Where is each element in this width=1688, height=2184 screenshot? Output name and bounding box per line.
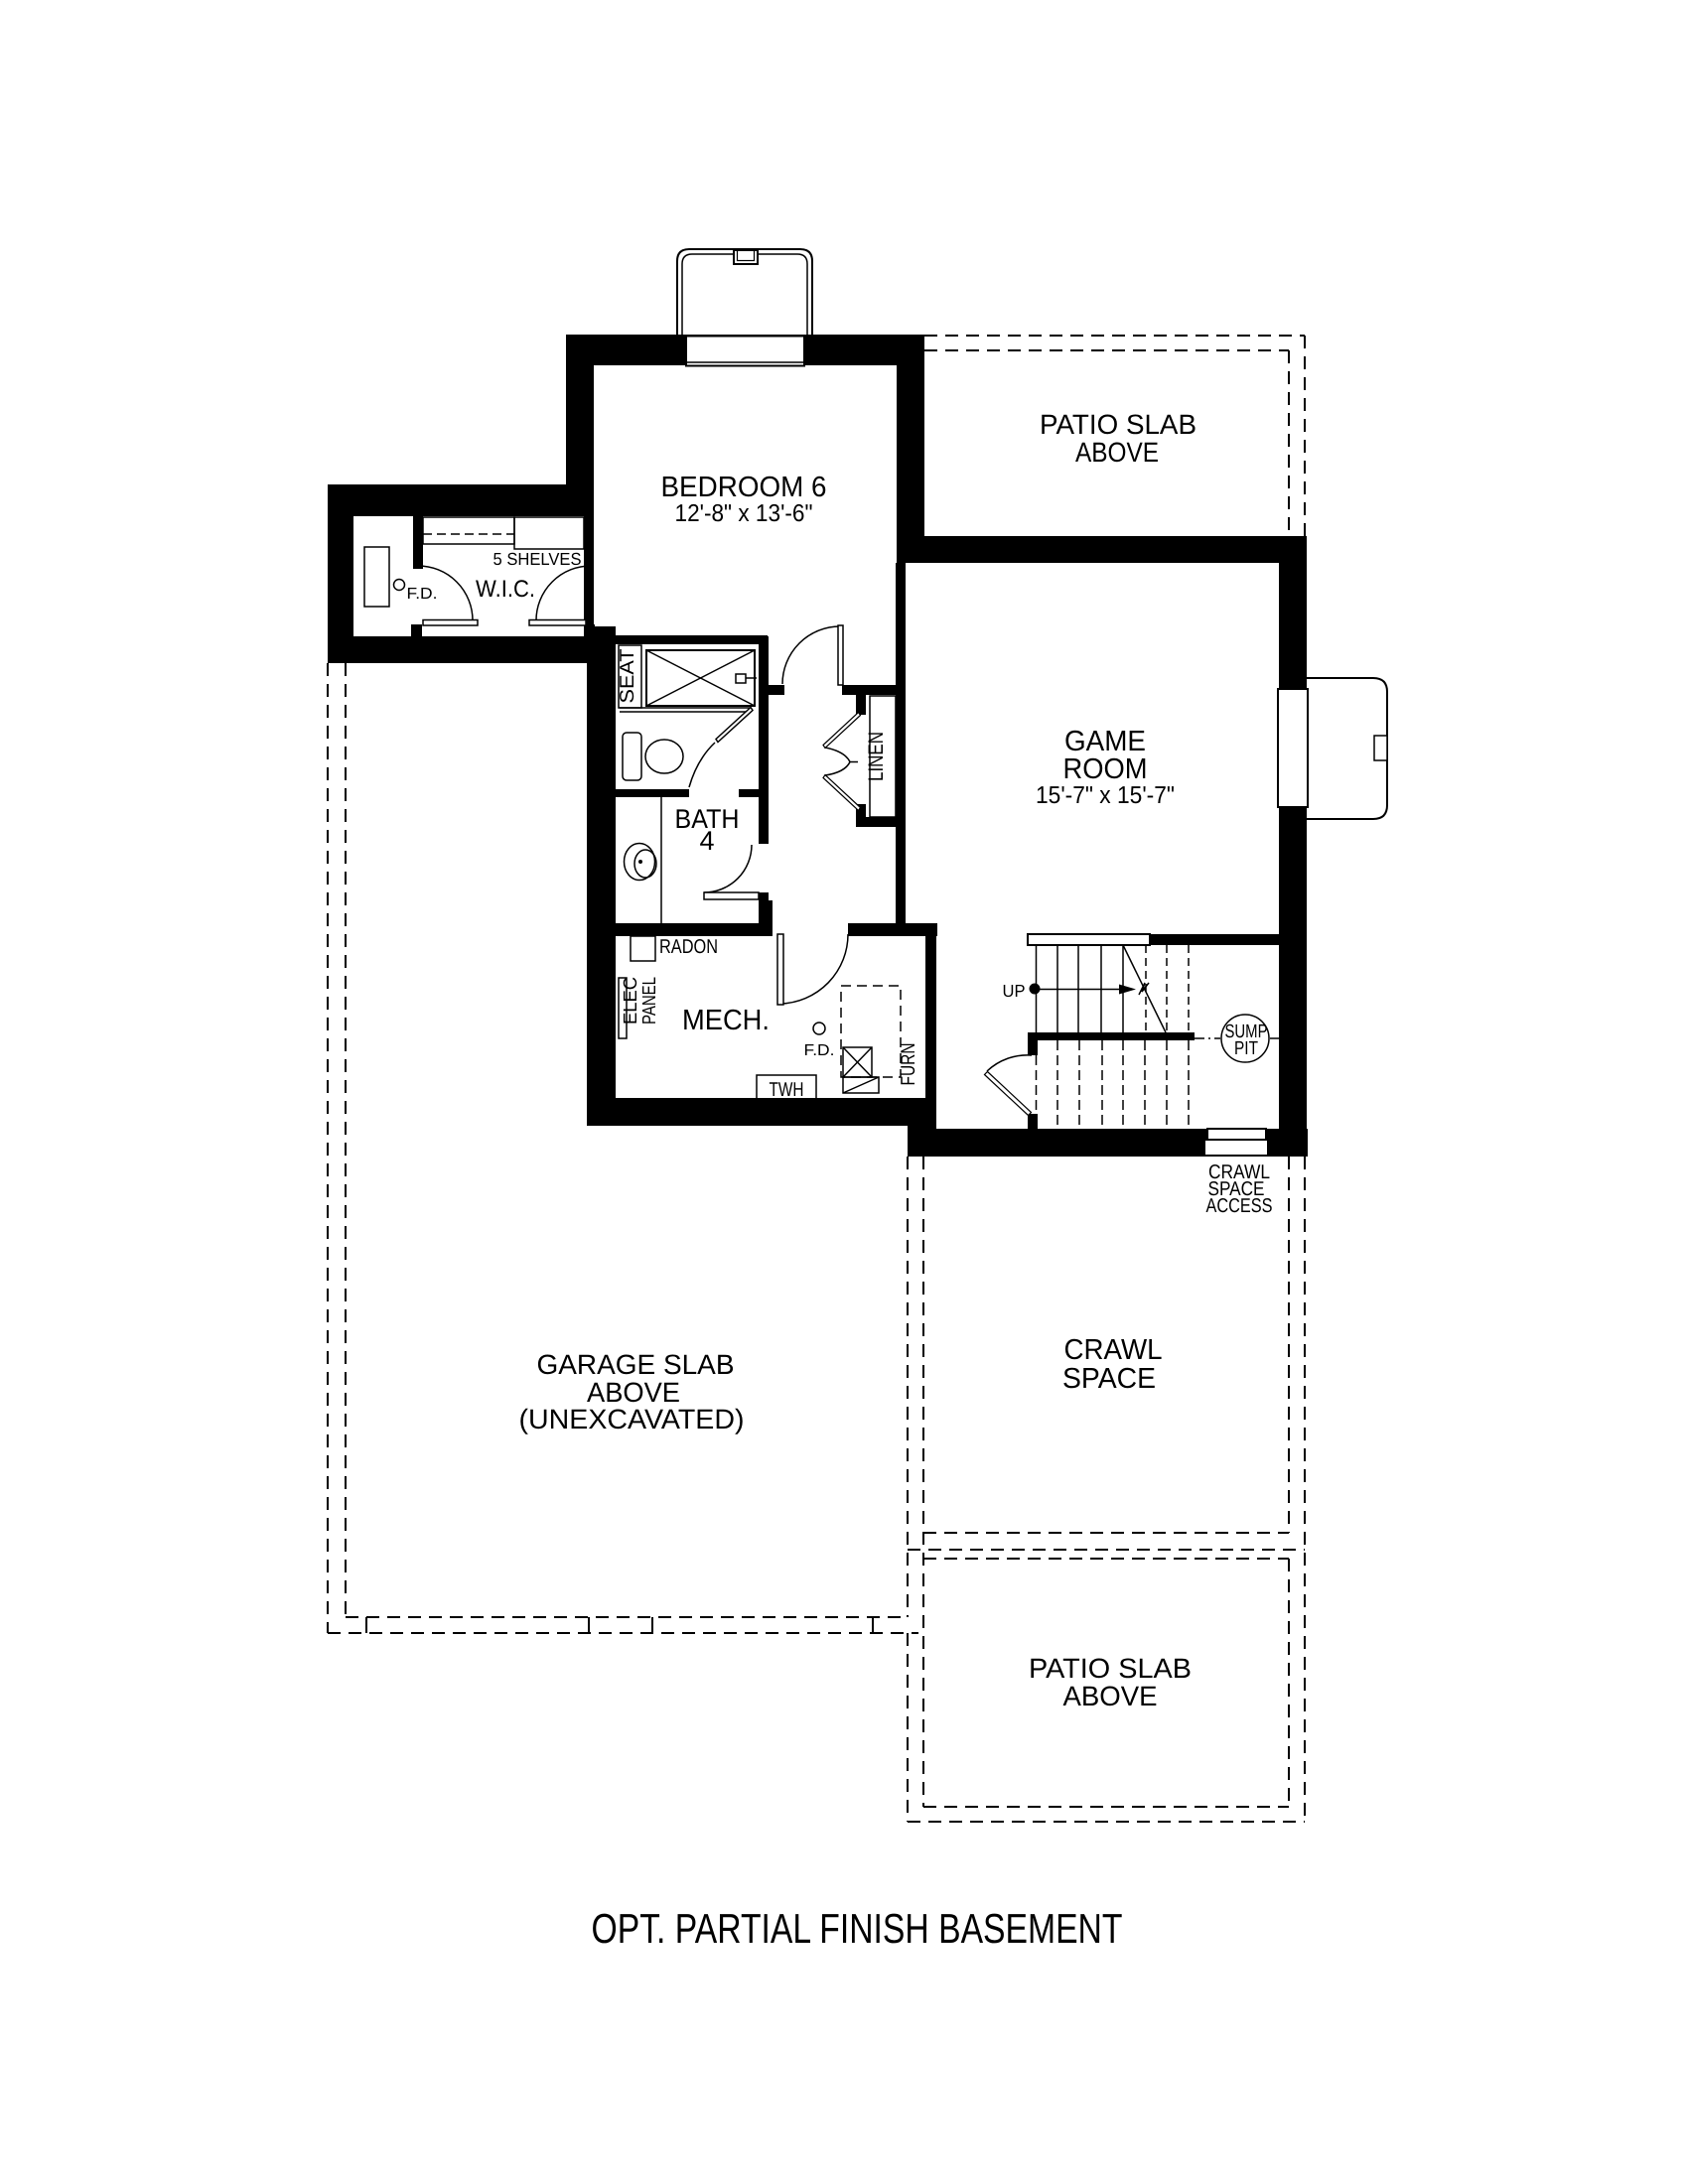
svg-text:GARAGE SLAB: GARAGE SLAB [537, 1349, 735, 1380]
svg-text:12'-8" x 13'-6": 12'-8" x 13'-6" [675, 500, 813, 527]
svg-text:ABOVE: ABOVE [1075, 437, 1159, 468]
svg-text:W.I.C.: W.I.C. [476, 576, 535, 603]
svg-text:SPACE: SPACE [1062, 1363, 1156, 1395]
svg-text:5 SHELVES: 5 SHELVES [493, 549, 582, 569]
svg-text:ACCESS: ACCESS [1206, 1195, 1273, 1217]
svg-text:ROOM: ROOM [1063, 753, 1148, 785]
svg-text:PANEL: PANEL [639, 977, 660, 1024]
svg-text:UP: UP [1003, 981, 1026, 1001]
svg-text:(UNEXCAVATED): (UNEXCAVATED) [519, 1404, 745, 1434]
svg-text:ELEC: ELEC [621, 977, 641, 1024]
svg-text:CRAWL: CRAWL [1064, 1334, 1163, 1366]
svg-text:15'-7" x 15'-7": 15'-7" x 15'-7" [1036, 782, 1175, 809]
svg-text:PATIO SLAB: PATIO SLAB [1029, 1653, 1192, 1684]
svg-text:MECH.: MECH. [682, 1005, 770, 1036]
svg-text:PIT: PIT [1234, 1038, 1258, 1059]
svg-text:OPT. PARTIAL FINISH BASEMENT: OPT. PARTIAL FINISH BASEMENT [592, 1905, 1123, 1952]
svg-text:BEDROOM 6: BEDROOM 6 [661, 472, 827, 503]
svg-text:TWH: TWH [770, 1079, 804, 1101]
svg-text:PATIO SLAB: PATIO SLAB [1040, 409, 1196, 440]
svg-text:SEAT: SEAT [617, 649, 638, 704]
svg-text:F.D.: F.D. [804, 1042, 835, 1059]
svg-text:LINEN: LINEN [865, 732, 888, 781]
svg-text:RADON: RADON [659, 936, 718, 958]
svg-text:FURN: FURN [898, 1043, 919, 1086]
svg-text:F.D.: F.D. [407, 586, 438, 603]
svg-text:ABOVE: ABOVE [1063, 1681, 1158, 1711]
svg-text:4: 4 [699, 826, 714, 856]
